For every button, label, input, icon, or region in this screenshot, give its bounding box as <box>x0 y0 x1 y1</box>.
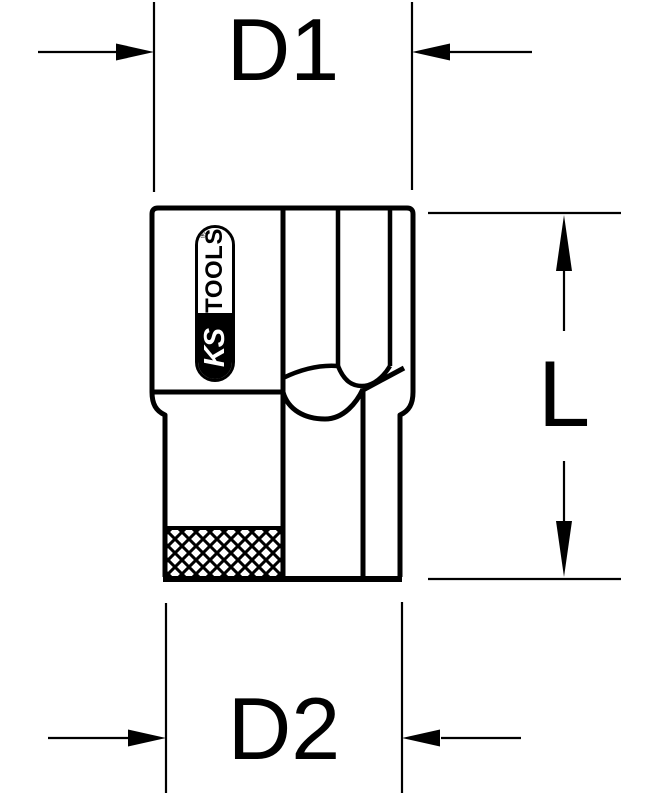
d2-arrowhead-left-icon <box>402 730 440 747</box>
l-arrowhead-down-icon <box>556 521 572 577</box>
mouth-diagonal-edge <box>363 368 404 390</box>
d1-arrowhead-left-icon <box>412 44 450 61</box>
drawing-canvas: D1 L D2 KS TOOLS ® <box>0 0 654 800</box>
brand-logo: KS TOOLS ® <box>195 225 235 382</box>
brand-logo-tools-label: TOOLS <box>201 228 229 313</box>
brand-logo-ks-text: KS <box>198 313 232 379</box>
dim-label-d2: D2 <box>166 685 402 773</box>
facet-scallop-left <box>283 366 338 378</box>
body-left-edge <box>152 392 165 577</box>
d2-arrowhead-right-icon <box>128 730 166 747</box>
brand-logo-tools-text: TOOLS ® <box>198 228 232 313</box>
registered-trademark-icon: ® <box>198 231 208 238</box>
knurl-band <box>167 530 281 577</box>
body-right-edge <box>400 392 413 577</box>
mouth-curve <box>283 389 363 419</box>
dim-label-d1: D1 <box>154 6 412 94</box>
socket-body <box>152 208 413 579</box>
l-arrowhead-up-icon <box>556 215 572 271</box>
facet-scallop-right <box>338 366 390 386</box>
d1-arrowhead-right-icon <box>116 44 154 61</box>
dim-label-length: L <box>519 347 609 441</box>
brand-logo-pill: KS TOOLS ® <box>195 225 235 382</box>
